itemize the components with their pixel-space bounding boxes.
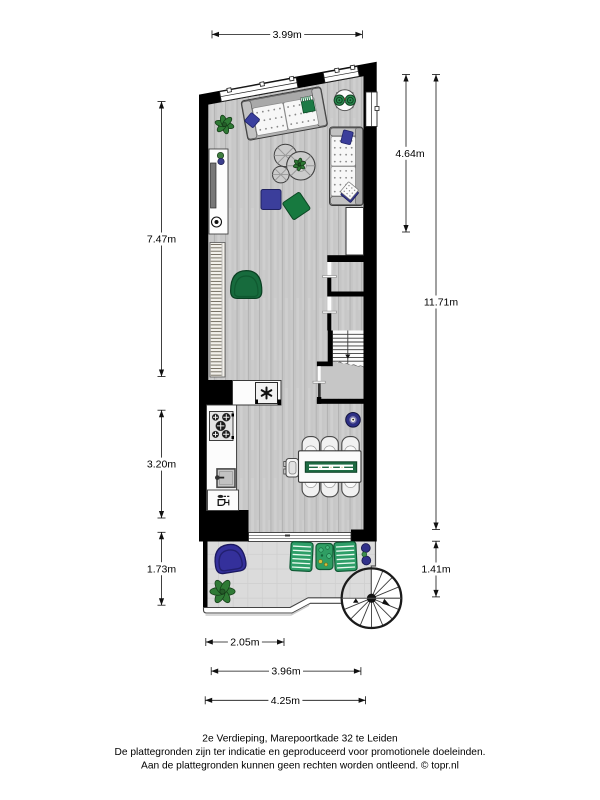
svg-text:3.20m: 3.20m bbox=[147, 459, 176, 471]
svg-text:11.71m: 11.71m bbox=[424, 297, 458, 309]
svg-text:1.41m: 1.41m bbox=[421, 564, 450, 576]
svg-text:2.05m: 2.05m bbox=[230, 637, 259, 649]
svg-text:7.47m: 7.47m bbox=[147, 234, 176, 246]
svg-text:3.99m: 3.99m bbox=[273, 29, 302, 41]
svg-text:4.64m: 4.64m bbox=[395, 148, 424, 160]
svg-text:4.25m: 4.25m bbox=[271, 695, 300, 707]
svg-text:De plattegronden zijn ter indi: De plattegronden zijn ter indicatie en g… bbox=[115, 747, 486, 758]
svg-text:2e Verdieping, Marepoortkade 3: 2e Verdieping, Marepoortkade 32 te Leide… bbox=[202, 734, 397, 745]
svg-text:3.96m: 3.96m bbox=[271, 666, 300, 678]
svg-text:Aan de plattegronden kunnen ge: Aan de plattegronden kunnen geen rechten… bbox=[141, 761, 459, 772]
svg-text:1.73m: 1.73m bbox=[147, 563, 176, 575]
